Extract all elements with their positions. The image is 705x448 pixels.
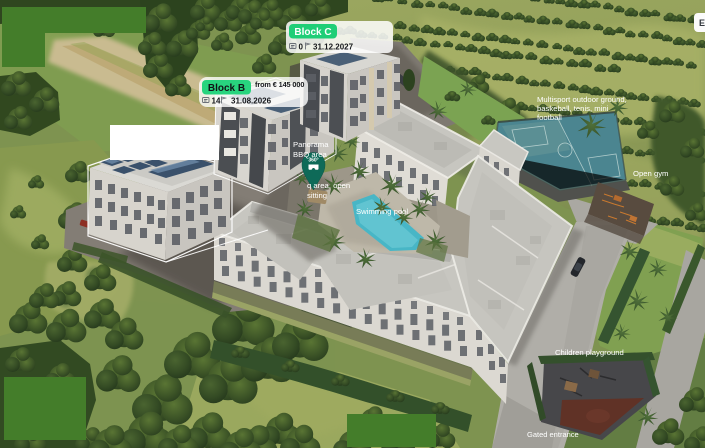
svg-text:baskeball, tenis, mini: baskeball, tenis, mini: [537, 104, 609, 113]
svg-text:31.12.2027: 31.12.2027: [313, 43, 354, 52]
svg-text:q area, open: q area, open: [307, 181, 350, 190]
svg-text:from € 145 000: from € 145 000: [255, 80, 304, 89]
svg-text:31.08.2026: 31.08.2026: [231, 97, 272, 106]
svg-text:football: football: [537, 113, 562, 122]
svg-text:sitting: sitting: [307, 191, 327, 200]
svg-text:Multisport outdoor ground,: Multisport outdoor ground,: [537, 95, 627, 104]
svg-text:Gated entrance: Gated entrance: [527, 430, 579, 439]
svg-text:E: E: [699, 18, 705, 28]
svg-text:Block C: Block C: [294, 27, 331, 38]
svg-text:Block B: Block B: [208, 83, 245, 94]
svg-text:BBQ area: BBQ area: [293, 150, 327, 159]
svg-text:Swimming pool: Swimming pool: [356, 207, 408, 216]
svg-text:14: 14: [212, 97, 221, 106]
svg-text:Children playground: Children playground: [555, 348, 624, 357]
svg-text:Panorama: Panorama: [293, 140, 329, 149]
svg-text:0: 0: [299, 43, 304, 52]
svg-text:Open gym: Open gym: [633, 169, 668, 178]
